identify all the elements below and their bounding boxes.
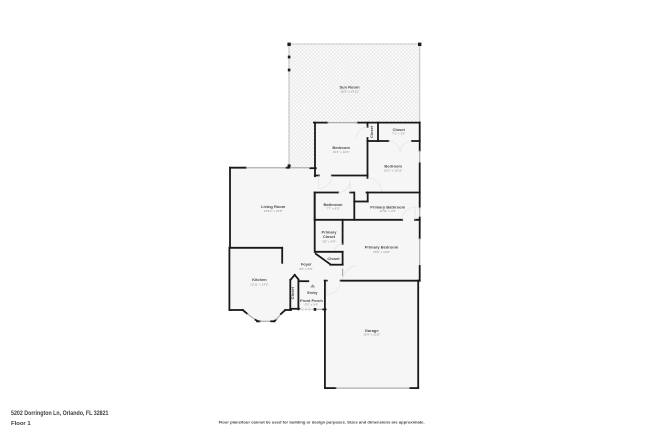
svg-text:26'5" x 24'11": 26'5" x 24'11" bbox=[341, 90, 359, 94]
svg-text:5'2" x 9'4": 5'2" x 9'4" bbox=[305, 303, 319, 307]
svg-text:7'7" x 6'3": 7'7" x 6'3" bbox=[326, 207, 340, 211]
svg-text:Closet: Closet bbox=[290, 286, 295, 299]
svg-text:3'5" x 9'9": 3'5" x 9'9" bbox=[322, 239, 336, 243]
svg-text:Closet: Closet bbox=[369, 125, 374, 138]
svg-text:10'4" x 10'3": 10'4" x 10'3" bbox=[333, 150, 350, 154]
svg-text:7'1" x 3'3": 7'1" x 3'3" bbox=[392, 132, 406, 136]
svg-text:9'5" x 5'5": 9'5" x 5'5" bbox=[299, 267, 313, 271]
svg-text:Closet: Closet bbox=[323, 234, 336, 239]
svg-text:18'10" x 19'8": 18'10" x 19'8" bbox=[264, 209, 283, 213]
svg-text:Closet: Closet bbox=[327, 256, 340, 261]
svg-text:5202 Dorrington Ln, Orlando, F: 5202 Dorrington Ln, Orlando, FL 32821 bbox=[11, 410, 109, 417]
svg-text:12'11" x 4'5": 12'11" x 4'5" bbox=[379, 209, 396, 213]
svg-text:16'2" x 10'11": 16'2" x 10'11" bbox=[384, 168, 402, 172]
svg-text:Kitchen: Kitchen bbox=[252, 277, 267, 282]
svg-text:Floor 1: Floor 1 bbox=[11, 421, 31, 427]
svg-text:Floor plans/tour cannot be use: Floor plans/tour cannot be used for buil… bbox=[219, 421, 425, 425]
svg-text:15'5" x 12'8": 15'5" x 12'8" bbox=[373, 250, 390, 254]
svg-text:19'9" x 21'8": 19'9" x 21'8" bbox=[363, 333, 380, 337]
svg-text:13'11" x 14'3": 13'11" x 14'3" bbox=[250, 283, 268, 287]
svg-text:Entry: Entry bbox=[307, 290, 318, 295]
svg-text:Primary Bedroom: Primary Bedroom bbox=[365, 245, 399, 250]
